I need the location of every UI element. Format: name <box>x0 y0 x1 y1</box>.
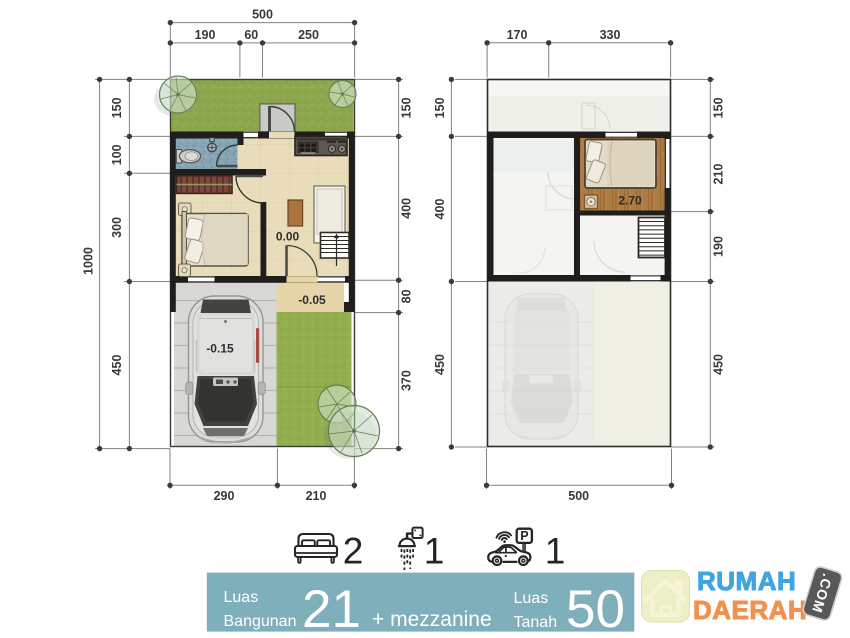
svg-text:250: 250 <box>298 28 319 42</box>
svg-text:330: 330 <box>600 28 621 42</box>
svg-text:Bangunan: Bangunan <box>224 613 297 630</box>
svg-text:500: 500 <box>252 8 273 22</box>
svg-text:P: P <box>520 529 528 543</box>
svg-text:1: 1 <box>424 531 445 572</box>
svg-text:150: 150 <box>400 97 414 118</box>
svg-text:150: 150 <box>433 97 447 118</box>
svg-text:100: 100 <box>110 144 124 165</box>
svg-text:Luas: Luas <box>224 589 259 606</box>
svg-text:-0.05: -0.05 <box>298 293 326 307</box>
svg-text:80: 80 <box>400 289 414 303</box>
svg-text:400: 400 <box>433 199 447 220</box>
svg-text:150: 150 <box>110 97 124 118</box>
svg-text:Tanah: Tanah <box>514 614 558 631</box>
svg-text:50: 50 <box>566 580 625 633</box>
svg-text:450: 450 <box>110 355 124 376</box>
svg-text:290: 290 <box>214 489 235 503</box>
svg-text:1000: 1000 <box>82 247 96 275</box>
svg-text:190: 190 <box>712 236 726 257</box>
svg-text:60: 60 <box>244 28 258 42</box>
svg-text:2: 2 <box>343 531 364 572</box>
svg-text:RUMAH: RUMAH <box>697 566 796 596</box>
svg-text:150: 150 <box>712 97 726 118</box>
svg-text:450: 450 <box>433 354 447 375</box>
svg-text:+ mezzanine: + mezzanine <box>372 608 492 631</box>
svg-text:-0.15: -0.15 <box>206 342 234 356</box>
svg-text:21: 21 <box>302 580 361 633</box>
svg-text:2.70: 2.70 <box>618 194 642 208</box>
svg-text:210: 210 <box>712 164 726 185</box>
svg-text:450: 450 <box>712 354 726 375</box>
svg-text:400: 400 <box>400 198 414 219</box>
svg-text:1: 1 <box>545 531 566 572</box>
svg-text:0.00: 0.00 <box>276 230 300 244</box>
svg-text:DAERAH: DAERAH <box>693 595 807 625</box>
svg-text:170: 170 <box>507 28 528 42</box>
svg-text:210: 210 <box>306 489 327 503</box>
svg-text:300: 300 <box>110 217 124 238</box>
svg-text:Luas: Luas <box>514 590 549 607</box>
svg-text:370: 370 <box>400 370 414 391</box>
svg-text:190: 190 <box>195 28 216 42</box>
svg-text:500: 500 <box>568 489 589 503</box>
